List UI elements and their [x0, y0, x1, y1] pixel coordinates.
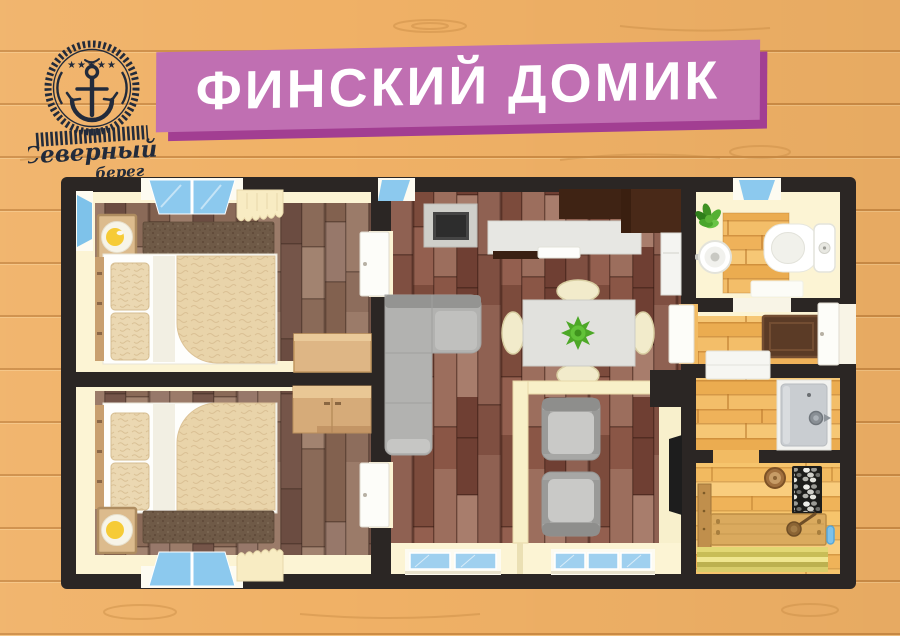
white-bath-mat: [751, 281, 803, 297]
veranda-partition-vertical: [513, 381, 528, 543]
lamp-light: [106, 521, 124, 539]
dining-chair: [557, 280, 599, 302]
wall-pier: [650, 370, 696, 407]
title-banner-face: ФИНСКИЙ ДОМИК: [156, 40, 760, 133]
cabinet-side-shade: [621, 189, 631, 233]
sofa-armrest: [387, 439, 430, 453]
table-plant-core: [575, 330, 582, 337]
fridge: [661, 233, 681, 295]
sofa-backrest: [385, 295, 481, 308]
right-paren-arc: [122, 72, 127, 104]
grain-knot: [730, 146, 790, 158]
counter-dark-lip: [493, 251, 539, 259]
living-bottom-window-a: [405, 549, 501, 575]
bed-throw: [143, 222, 274, 254]
dining-chair: [502, 312, 524, 354]
sofa-chaise-cushion: [435, 311, 477, 350]
veranda-armchair-2: [542, 472, 600, 536]
left-window-glass: [77, 195, 92, 247]
room-shower: [777, 380, 831, 450]
stove-stones: [794, 468, 820, 512]
pillow: [111, 463, 149, 510]
poster-title: ФИНСКИЙ ДОМИК: [196, 49, 721, 122]
grain-knot: [394, 20, 466, 32]
sauna-door-opening: [713, 450, 759, 463]
sauna-thermometer: [827, 526, 834, 544]
toilet: [764, 224, 835, 272]
shower-head-dot: [807, 393, 811, 397]
floorplan: [61, 177, 856, 589]
duvet: [177, 256, 275, 363]
lamp-light: [106, 228, 124, 246]
grain-line: [560, 154, 720, 160]
grain-knot: [782, 604, 838, 616]
lamp-highlight: [117, 231, 124, 235]
pillow: [111, 263, 149, 310]
grain-line: [620, 26, 770, 31]
dresser-top-edge: [294, 334, 371, 341]
tv-screen: [436, 215, 466, 237]
duvet: [177, 403, 275, 510]
poster-root: { "poster": { "width": 900, "height": 63…: [0, 0, 900, 636]
brand-logo: ★★★★★ Северный берег: [28, 16, 158, 182]
living-hall-door: [669, 305, 694, 363]
entrance-opening: [838, 304, 856, 364]
grain-knot: [412, 23, 448, 29]
sink-drain: [711, 253, 720, 262]
veranda-wall-tv: [669, 435, 682, 515]
wardrobe-shadow: [317, 426, 371, 433]
living-bottom-window-b: [551, 549, 655, 575]
pillow: [111, 413, 149, 460]
grain-line: [300, 614, 480, 618]
glass-highlight: [783, 386, 790, 444]
partition-lower-strip: [517, 543, 523, 574]
door-handle: [820, 332, 824, 336]
sheet-fold: [153, 256, 175, 362]
door-handle: [363, 262, 367, 266]
pillow: [111, 313, 149, 360]
wardrobe-top-edge: [293, 386, 371, 398]
title-banner: ФИНСКИЙ ДОМИК: [155, 40, 761, 133]
bathroom-door-opening: [733, 298, 791, 312]
kitchen-sink: [538, 247, 580, 258]
bed-throw: [143, 511, 274, 543]
left-paren-arc: [57, 72, 62, 104]
sheet-fold: [153, 404, 175, 510]
grain-knot: [104, 605, 176, 619]
veranda-armchair-1: [542, 398, 600, 460]
slat-bench: [697, 547, 828, 572]
curtain: [237, 549, 283, 581]
door-handle: [363, 493, 367, 497]
